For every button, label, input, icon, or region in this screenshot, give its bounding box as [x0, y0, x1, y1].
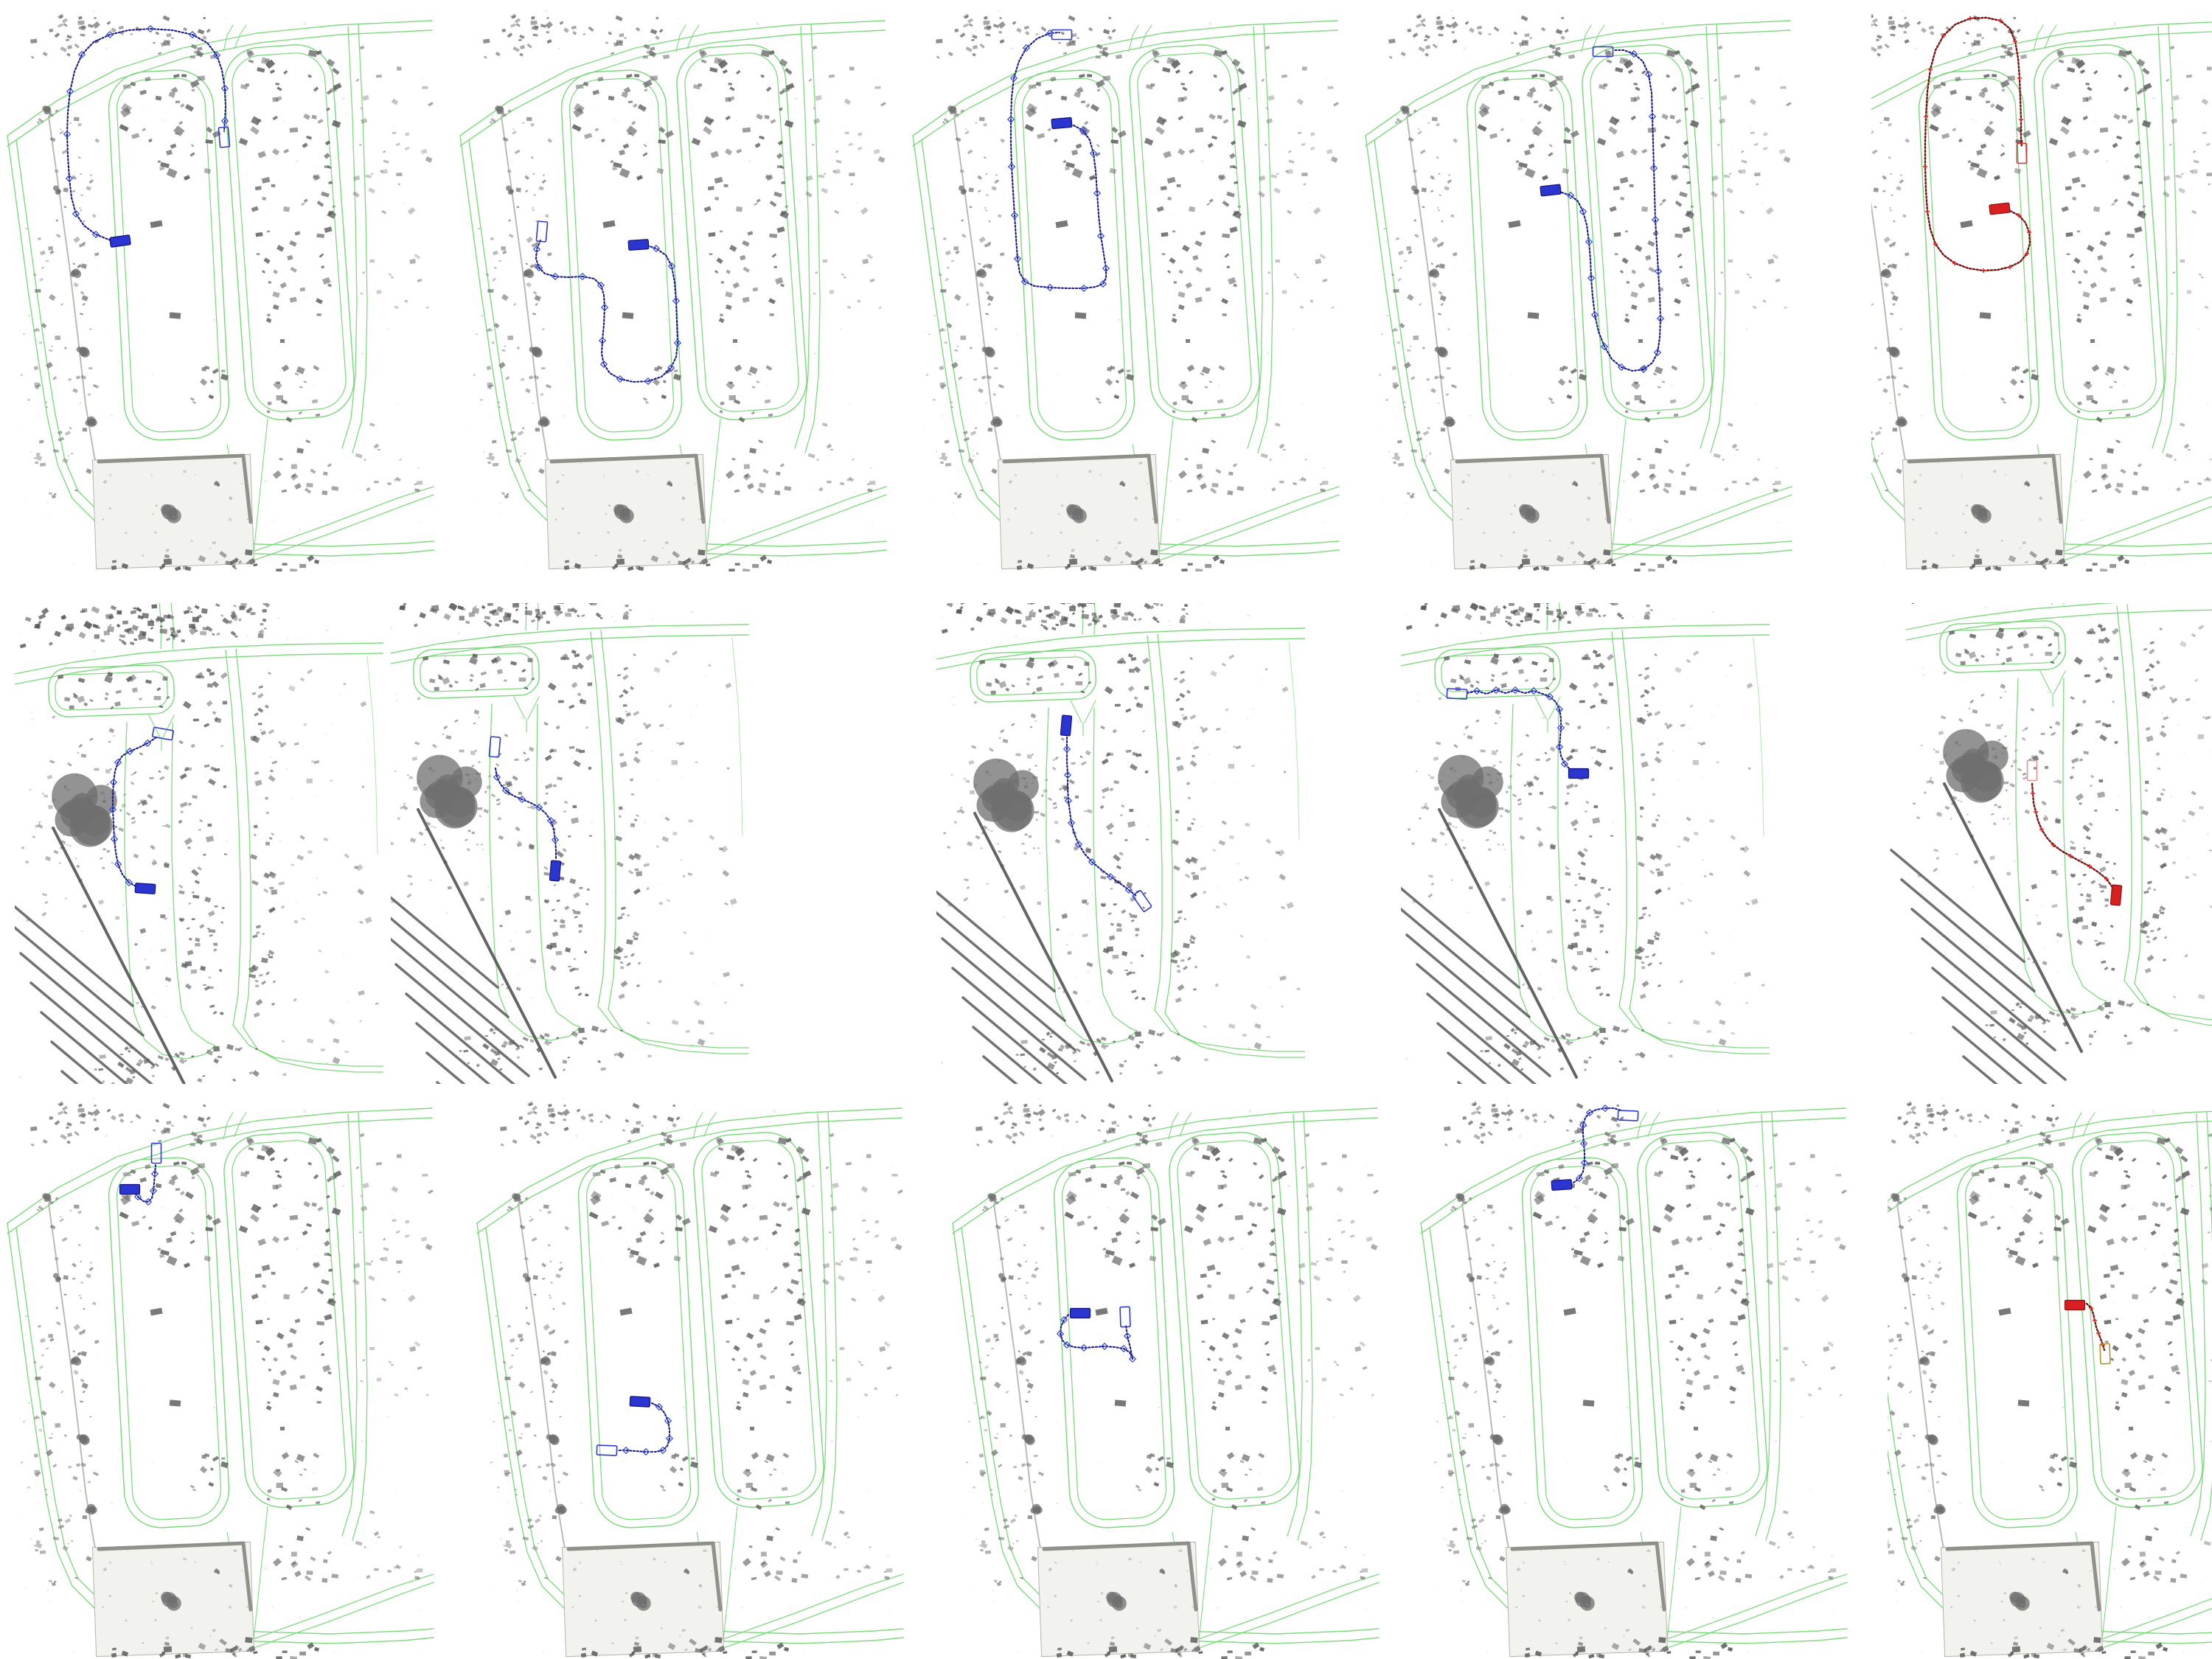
- vegetation-blob: [554, 1504, 566, 1515]
- parking-loop-road: [413, 646, 540, 699]
- map-layer: [1871, 10, 2212, 571]
- map-layer: [1366, 10, 1792, 571]
- trajectory-path: [134, 1165, 156, 1202]
- vegetation-blob: [77, 347, 90, 358]
- vegetation-blob: [71, 268, 82, 278]
- map-layer: [1888, 1098, 2212, 1659]
- clutter-scatter: [391, 603, 722, 1060]
- map-layer: [1421, 1098, 1847, 1659]
- clutter-scatter: [2105, 1340, 2180, 1411]
- vegetation-blob: [987, 1193, 997, 1202]
- map-rect: [733, 339, 737, 343]
- map-panel-r2c1: [15, 603, 383, 1084]
- clutter-scatter: [2208, 1341, 2212, 1397]
- parking-loop-road: [2032, 42, 2167, 422]
- trajectory-path: [618, 1403, 669, 1452]
- lane-line: [1107, 1028, 1137, 1044]
- clutter-scatter: [1447, 1197, 1513, 1586]
- map-panel-r3c3: [951, 1093, 1380, 1659]
- clutter-scatter: [1170, 657, 1199, 1003]
- trajectory-layer: [1060, 715, 1152, 912]
- vegetation-blob: [959, 186, 967, 195]
- lane-line: [2127, 605, 2142, 984]
- clutter-scatter: [1157, 165, 1242, 252]
- map-rect: [280, 339, 285, 343]
- lane-line: [1165, 1013, 1305, 1057]
- map-rect: [602, 220, 615, 229]
- map-line: [518, 1204, 576, 1579]
- clutter-scatter: [1604, 1453, 1642, 1492]
- vegetation-blob: [982, 347, 995, 358]
- vegetation-blob: [1490, 1434, 1503, 1445]
- goal-outline-box: [1052, 30, 1072, 40]
- trajectory-path: [536, 240, 678, 382]
- waypoint-cross-icon: [2093, 1318, 2097, 1323]
- clutter-scatter: [726, 439, 791, 495]
- trajectory-layer: [1551, 1105, 1638, 1191]
- clutter-scatter: [1378, 228, 1402, 464]
- clutter-scatter: [1714, 422, 1781, 492]
- clutter-scatter: [742, 1527, 808, 1582]
- map-panel-r2c2: [391, 603, 759, 1084]
- lane-line: [2102, 1582, 2212, 1648]
- clutter-scatter: [2077, 364, 2131, 422]
- trajectory-path: [2087, 1304, 2104, 1350]
- map-rect: [1528, 312, 1540, 319]
- parking-loop-road: [1052, 1156, 1176, 1530]
- clutter-scatter: [251, 1253, 336, 1340]
- clutter-scatter: [613, 653, 642, 999]
- vegetation-blob: [546, 1434, 560, 1445]
- vegetation-blob: [976, 268, 987, 278]
- vegetation-blob: [1919, 1356, 1930, 1366]
- clutter-scatter: [18, 617, 357, 1078]
- clutter-scatter: [1212, 1452, 1266, 1510]
- clutter-scatter: [20, 605, 181, 649]
- parking-loop-road: [1520, 1156, 1644, 1530]
- vehicle-box: [1540, 184, 1561, 196]
- clutter-scatter: [34, 1197, 100, 1586]
- clutter-scatter: [251, 165, 336, 252]
- clutter-scatter: [2163, 46, 2212, 215]
- map-line: [1407, 116, 1464, 491]
- clutter-scatter: [190, 366, 229, 404]
- vegetation-blob: [1881, 268, 1892, 278]
- lane-line: [2062, 603, 2065, 605]
- waypoint-cross-icon: [1981, 268, 1986, 273]
- vegetation-blob: [1443, 417, 1455, 428]
- lane-line: [2077, 998, 2107, 1015]
- vehicle-box: [2065, 1301, 2085, 1310]
- lane-line: [1558, 704, 1594, 1024]
- lane-line: [1612, 632, 1627, 1006]
- clutter-scatter: [2115, 1452, 2169, 1510]
- map-panel-r2c5: [1836, 603, 2212, 1084]
- vehicle-box: [2110, 885, 2121, 905]
- clutter-scatter: [737, 1452, 790, 1510]
- vegetation-blob: [42, 105, 52, 114]
- map-panel-r3c2: [476, 1093, 905, 1659]
- parking-loop-road: [1167, 1130, 1302, 1509]
- lane-line: [2163, 25, 2177, 453]
- lane-line: [367, 656, 378, 854]
- lane-line: [254, 1582, 434, 1648]
- lane-line: [1612, 495, 1792, 560]
- clutter-scatter: [34, 109, 100, 498]
- map-rect: [1115, 1399, 1127, 1406]
- map-layer: [913, 10, 1339, 571]
- clutter-scatter: [726, 1340, 801, 1411]
- clutter-scatter: [1517, 734, 1558, 991]
- clutter-scatter: [20, 1315, 44, 1551]
- lane-line: [1159, 419, 1173, 553]
- clutter-scatter: [589, 1161, 691, 1268]
- lane-line: [608, 1009, 748, 1054]
- clutter-scatter: [267, 1452, 321, 1510]
- trajectory-layer: [1923, 16, 2031, 273]
- clutter-scatter: [483, 14, 669, 60]
- clutter-scatter: [1261, 422, 1329, 492]
- lane-line: [1667, 1582, 1847, 1648]
- vegetation-blob: [538, 417, 549, 428]
- clutter-scatter: [1769, 1510, 1837, 1579]
- waypoint-cross-icon: [2031, 791, 2035, 796]
- map-rect: [1075, 312, 1087, 319]
- clutter-scatter: [20, 228, 44, 464]
- lane-line: [243, 1028, 383, 1072]
- map-rect: [1055, 220, 1068, 229]
- clutter-scatter: [942, 603, 1103, 633]
- map-rect: [2018, 1399, 2030, 1406]
- clutter-scatter: [2070, 624, 2119, 971]
- trajectory-path: [1925, 18, 2030, 271]
- lane-line: [352, 1113, 367, 1540]
- clutter-scatter: [504, 1197, 569, 1586]
- lane-line: [1906, 609, 2212, 640]
- vehicle-box: [110, 235, 131, 248]
- clutter-scatter: [720, 364, 773, 422]
- vegetation-blob: [1411, 186, 1419, 195]
- clutter-scatter: [1406, 603, 1568, 630]
- clutter-scatter: [1200, 654, 1300, 1061]
- map-rect: [1186, 339, 1190, 343]
- vegetation-blob: [85, 1504, 97, 1515]
- clutter-scatter: [391, 603, 546, 630]
- vegetation-blob: [85, 417, 97, 428]
- clutter-scatter: [1949, 627, 2061, 665]
- clutter-scatter: [1096, 366, 1134, 404]
- map-rect: [1694, 1427, 1698, 1430]
- parking-loop-road: [1939, 620, 2066, 673]
- clutter-scatter: [1567, 603, 1656, 624]
- map-panel-r1c1: [6, 6, 435, 571]
- parking-loop-road: [1580, 42, 1715, 422]
- clutter-scatter: [30, 1102, 217, 1147]
- clutter-scatter: [643, 366, 681, 404]
- lane-line: [2040, 671, 2051, 693]
- lane-line: [2063, 678, 2099, 998]
- clutter-scatter: [1404, 603, 1743, 1060]
- map-layer: [7, 10, 434, 571]
- waypoint-cross-icon: [2096, 1331, 2101, 1335]
- parking-loop-road: [222, 1130, 357, 1509]
- clutter-scatter: [119, 74, 221, 181]
- clutter-scatter: [355, 1510, 423, 1579]
- lane-line: [1612, 419, 1626, 553]
- lane-line: [226, 650, 240, 1025]
- lane-line: [1401, 635, 1770, 666]
- parking-loop-road: [675, 42, 810, 422]
- clutter-scatter: [1533, 1161, 1635, 1268]
- parking-loop-road: [560, 69, 684, 442]
- map-rect: [2090, 339, 2095, 343]
- clutter-scatter: [1433, 1315, 1457, 1551]
- vegetation-blob: [42, 1193, 52, 1202]
- map-panel-r2c3: [936, 603, 1305, 1084]
- map-layer: [15, 603, 383, 1084]
- vegetation-blob: [53, 186, 61, 195]
- clutter-scatter: [131, 752, 172, 1009]
- parking-loop-road: [1917, 69, 2041, 442]
- map-rect: [170, 1399, 181, 1406]
- clutter-scatter: [1016, 1029, 1181, 1075]
- clutter-scatter: [459, 1026, 625, 1071]
- clutter-scatter: [1202, 1340, 1277, 1411]
- clutter-scatter: [660, 1453, 698, 1492]
- parking-loop-road: [107, 1156, 231, 1530]
- lane-line: [1199, 1582, 1379, 1648]
- vegetation-blob: [1925, 1434, 1938, 1445]
- lane-line: [2135, 984, 2212, 1028]
- vehicle-box: [549, 860, 560, 881]
- map-rect: [1960, 220, 1972, 229]
- clutter-scatter: [2201, 1133, 2212, 1302]
- clutter-scatter: [2067, 253, 2142, 323]
- vegetation-blob: [1484, 1356, 1495, 1366]
- vegetation-blob: [1435, 347, 1448, 358]
- vegetation-blob: [495, 105, 504, 114]
- clutter-scatter: [1911, 603, 2073, 604]
- map-panel-r3c1: [6, 1093, 435, 1659]
- clutter-scatter: [360, 1341, 428, 1397]
- clutter-scatter: [1065, 1161, 1166, 1268]
- clutter-scatter: [2062, 165, 2146, 252]
- goal-outline-box: [1120, 1307, 1130, 1326]
- map-panel-r1c3: [911, 6, 1340, 571]
- lane-line: [2117, 606, 2132, 981]
- clutter-scatter: [2023, 708, 2063, 965]
- lane-line: [1630, 1009, 1770, 1054]
- vegetation-blob: [529, 347, 543, 358]
- clutter-scatter: [1388, 14, 1575, 60]
- map-line: [418, 810, 555, 1077]
- vehicle-box: [1989, 203, 2010, 215]
- clutter-scatter: [1162, 253, 1237, 323]
- lane-line: [822, 1113, 837, 1540]
- waypoint-cross-icon: [2019, 117, 2023, 122]
- lane-line: [1572, 1024, 1601, 1040]
- parking-loop-road: [692, 1130, 827, 1509]
- lane-line: [723, 1582, 903, 1648]
- vehicle-box: [1071, 1309, 1091, 1318]
- vehicle-box: [1551, 1180, 1572, 1191]
- map-line: [1897, 1204, 1955, 1579]
- clutter-scatter: [2121, 1527, 2187, 1582]
- map-panel-r3c4: [1419, 1093, 1848, 1659]
- map-panel-r2c4: [1401, 603, 1770, 1084]
- clutter-scatter: [1392, 109, 1458, 498]
- clutter-scatter: [1481, 1026, 1646, 1071]
- clutter-scatter: [1871, 14, 2027, 60]
- map-layer: [953, 1098, 1379, 1659]
- clutter-scatter: [1265, 254, 1334, 309]
- lane-line: [2064, 419, 2078, 553]
- clutter-scatter: [1718, 254, 1787, 309]
- trajectory-path: [113, 737, 156, 887]
- lane-line: [591, 632, 605, 1006]
- clutter-scatter: [1773, 1341, 1842, 1397]
- clutter-scatter: [473, 228, 496, 464]
- lane-line: [254, 495, 434, 560]
- lane-line: [1298, 1113, 1312, 1540]
- map-rect: [1095, 1308, 1107, 1316]
- map-line: [954, 116, 1012, 491]
- clutter-scatter: [1135, 1453, 1174, 1492]
- clutter-scatter: [1478, 74, 1579, 181]
- vegetation-blob: [506, 186, 514, 195]
- clutter-scatter: [572, 74, 674, 181]
- waypoint-cross-icon: [2017, 76, 2022, 80]
- clutter-scatter: [1444, 653, 1556, 691]
- clutter-scatter: [1871, 109, 1910, 498]
- clutter-scatter: [1888, 1315, 1892, 1551]
- clutter-scatter: [500, 1102, 686, 1147]
- vegetation-blob: [53, 1273, 61, 1283]
- clutter-scatter: [1053, 737, 1093, 995]
- lane-line: [1711, 25, 1725, 453]
- map-panel-r1c2: [459, 6, 888, 571]
- vegetation-blob: [947, 105, 957, 114]
- vegetation-blob: [1030, 1504, 1042, 1515]
- map-panel-r3c5: [1888, 1093, 2212, 1659]
- lane-line: [936, 639, 1305, 669]
- vegetation-blob: [990, 417, 1002, 428]
- clutter-scatter: [1178, 439, 1244, 495]
- lane-line: [2098, 1574, 2212, 1641]
- clutter-scatter: [975, 1102, 1162, 1147]
- parking-loop-road: [970, 650, 1096, 703]
- vegetation-blob: [1887, 347, 1900, 358]
- lane-line: [936, 628, 1305, 659]
- clutter-scatter: [1197, 1253, 1281, 1340]
- clutter-scatter: [30, 14, 217, 60]
- clutter-scatter: [1986, 1000, 2151, 1046]
- vegetation-blob: [524, 268, 535, 278]
- clutter-scatter: [2100, 1253, 2185, 1340]
- map-line: [975, 813, 1112, 1081]
- clutter-scatter: [704, 165, 789, 252]
- clutter-scatter: [190, 1453, 229, 1492]
- lane-line: [172, 723, 208, 1043]
- clutter-scatter: [278, 669, 378, 1076]
- vegetation-blob: [523, 1273, 531, 1283]
- vegetation-blob: [71, 1356, 82, 1366]
- map-rect: [170, 312, 181, 319]
- clutter-scatter: [1631, 439, 1697, 495]
- map-line: [1439, 810, 1576, 1077]
- vehicle-box: [1060, 715, 1071, 736]
- clutter-scatter: [825, 1510, 893, 1579]
- trajectory-path: [1060, 1315, 1133, 1359]
- lane-line: [1159, 495, 1339, 560]
- lane-line: [514, 697, 525, 719]
- parking-loop-road: [577, 1156, 700, 1530]
- lane-line: [254, 419, 268, 553]
- waypoint-cross-icon: [1923, 164, 1927, 169]
- clutter-scatter: [181, 603, 270, 642]
- clutter-scatter: [813, 254, 881, 309]
- vehicle-box: [628, 240, 649, 251]
- goal-outline-box: [2100, 1343, 2110, 1363]
- clutter-scatter: [979, 657, 1091, 695]
- clutter-scatter: [267, 364, 321, 422]
- vegetation-blob: [1022, 1434, 1035, 1445]
- lane-line: [706, 495, 886, 560]
- parking-loop-road: [1465, 69, 1589, 442]
- clutter-scatter: [709, 253, 785, 323]
- clutter-scatter: [1686, 1527, 1752, 1582]
- vegetation-blob: [1455, 1193, 1465, 1202]
- vehicle-box: [630, 1397, 650, 1407]
- waypoint-cross-icon: [2034, 810, 2038, 814]
- map-line: [994, 1204, 1051, 1579]
- map-panel-r1c5: [1871, 6, 2212, 571]
- lane-line: [236, 649, 251, 1028]
- lane-line: [551, 1024, 580, 1040]
- vehicle-box: [1569, 769, 1589, 779]
- clutter-scatter: [257, 253, 332, 323]
- lane-line: [352, 25, 367, 453]
- clutter-scatter: [1664, 650, 1764, 1057]
- map-rect: [619, 1308, 632, 1316]
- clutter-scatter: [2140, 627, 2168, 973]
- parking-loop-road: [1012, 69, 1136, 442]
- clutter-scatter: [2039, 1453, 2077, 1492]
- clutter-scatter: [2204, 1510, 2212, 1579]
- lane-line: [15, 643, 383, 674]
- clutter-scatter: [273, 439, 338, 495]
- lane-line: [1158, 634, 1172, 1013]
- vegetation-blob: [998, 1273, 1006, 1283]
- clutter-scatter: [936, 14, 1122, 60]
- map-rect: [2129, 1427, 2133, 1430]
- clutter-scatter: [1625, 364, 1679, 422]
- trajectory-path: [495, 768, 556, 860]
- clutter-scatter: [1968, 1161, 2070, 1268]
- parking-loop-road: [1127, 42, 1262, 422]
- map-rect: [150, 1308, 162, 1316]
- clutter-scatter: [1635, 653, 1663, 999]
- clutter-scatter: [939, 603, 1279, 1063]
- lane-line: [1147, 636, 1162, 1010]
- map-rect: [150, 220, 162, 229]
- map-line: [1944, 784, 2081, 1051]
- vegetation-blob: [512, 1193, 521, 1202]
- clutter-scatter: [248, 672, 277, 1018]
- clutter-scatter: [490, 1315, 513, 1551]
- clutter-scatter: [355, 422, 423, 492]
- map-panel-r1c4: [1364, 6, 1793, 571]
